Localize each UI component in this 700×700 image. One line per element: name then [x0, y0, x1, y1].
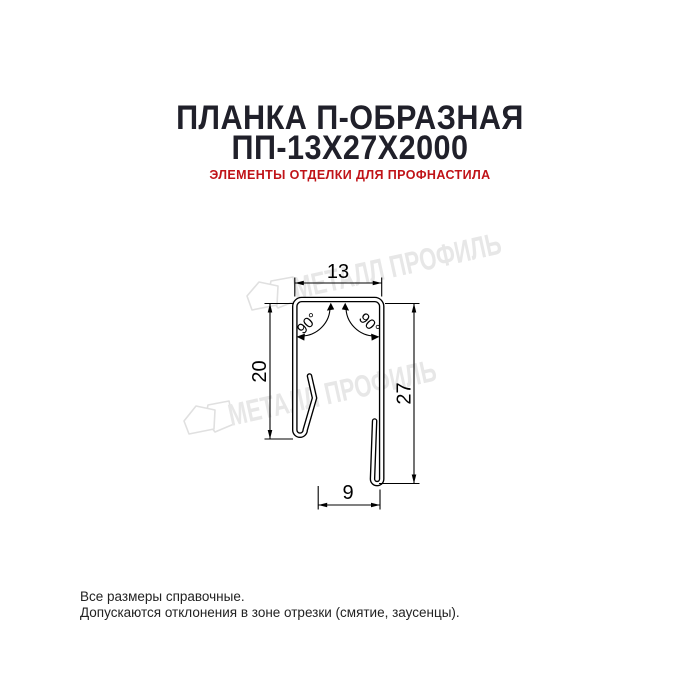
- dimension-bottom-width: 9: [318, 482, 380, 510]
- watermark-text: МЕТАЛЛ ПРОФИЛЬ: [290, 226, 505, 306]
- angle-annotation-left: 90°: [294, 303, 334, 341]
- angle-annotation-right: 90°: [342, 303, 383, 341]
- dimension-right-height-label: 27: [394, 382, 416, 404]
- footer-note-2: Допускаются отклонения в зоне отрезки (с…: [80, 605, 460, 621]
- footer-note-1: Все размеры справочные.: [80, 589, 460, 605]
- product-drawing-page: ПЛАНКА П-ОБРАЗНАЯ ПП-13Х27Х2000 ЭЛЕМЕНТЫ…: [0, 0, 700, 700]
- metall-profil-logo-icon: [247, 277, 298, 310]
- dimension-bottom-width-label: 9: [342, 482, 353, 504]
- dimension-top-width-label: 13: [327, 261, 349, 283]
- angle-left-label: 90°: [294, 310, 322, 338]
- dimension-left-height-label: 20: [249, 360, 271, 382]
- footer-notes: Все размеры справочные. Допускаются откл…: [80, 589, 460, 620]
